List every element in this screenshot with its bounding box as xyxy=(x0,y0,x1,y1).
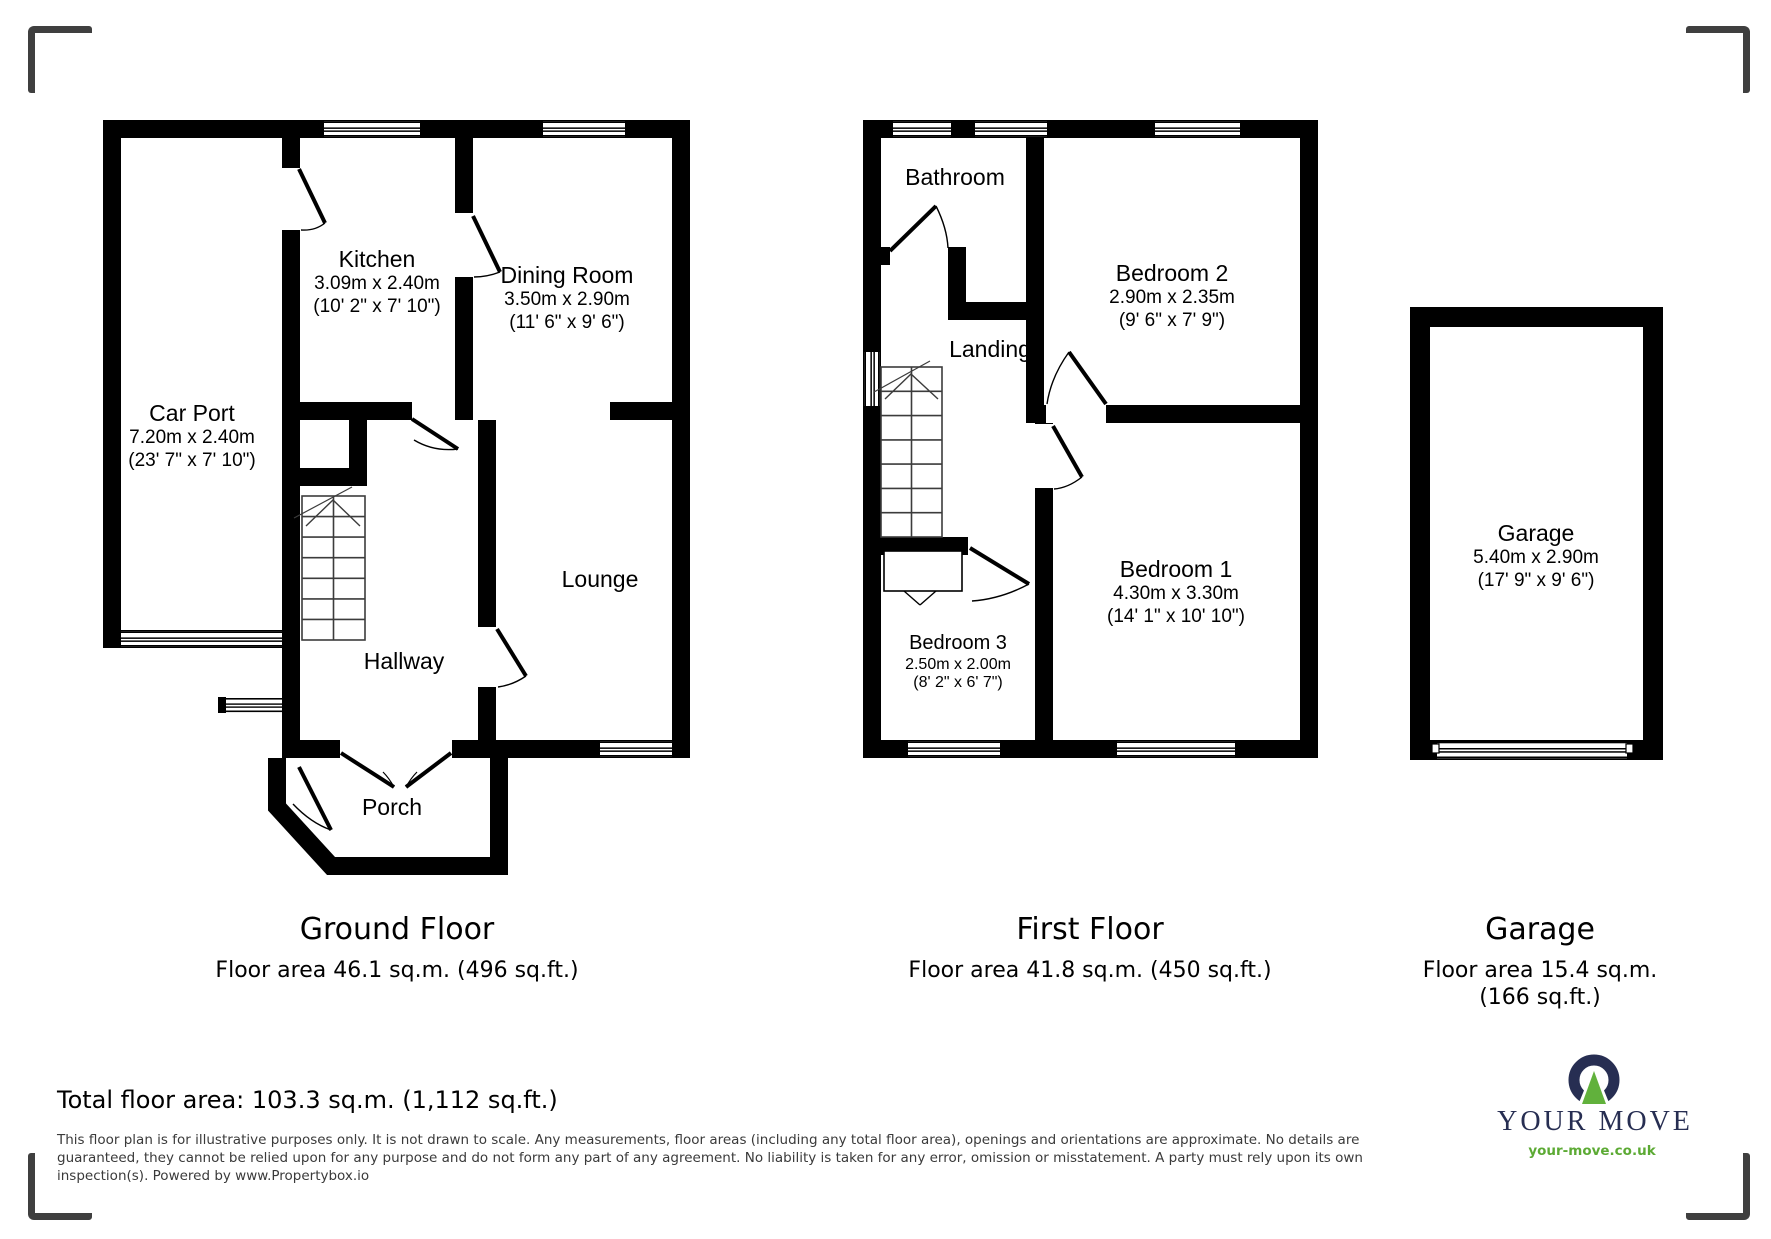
room-name: Bedroom 2 xyxy=(1109,260,1235,287)
garage-area-line1: Floor area 15.4 sq.m. xyxy=(1423,958,1658,983)
room-dims-metric: 3.50m x 2.90m xyxy=(501,289,634,311)
room-dims-imperial: (9' 6" x 7' 9") xyxy=(1109,310,1235,332)
window xyxy=(543,121,625,137)
room-label-landing: Landing xyxy=(949,336,1031,363)
corner-bracket-top-right xyxy=(1686,26,1750,93)
room-label-dining-room: Dining Room 3.50m x 2.90m (11' 6" x 9' 6… xyxy=(501,262,634,334)
room-label-car-port: Car Port 7.20m x 2.40m (23' 7" x 7' 10") xyxy=(128,400,255,472)
floorplan-drawing xyxy=(0,0,1771,1239)
room-name: Landing xyxy=(949,336,1031,363)
room-label-kitchen: Kitchen 3.09m x 2.40m (10' 2" x 7' 10") xyxy=(313,246,440,318)
your-move-wordmark: YOUR MOVE xyxy=(1497,1106,1693,1138)
stairs xyxy=(874,361,942,537)
room-label-porch: Porch xyxy=(362,794,422,821)
room-dims-metric: 4.30m x 3.30m xyxy=(1107,583,1245,605)
garage-area-line2: (166 sq.ft.) xyxy=(1479,985,1601,1010)
room-dims-metric: 5.40m x 2.90m xyxy=(1473,547,1599,569)
garage-door xyxy=(1432,742,1633,759)
room-dims-metric: 3.09m x 2.40m xyxy=(313,273,440,295)
room-name: Lounge xyxy=(562,566,639,593)
room-label-bedroom-3: Bedroom 3 2.50m x 2.00m (8' 2" x 6' 7") xyxy=(905,632,1011,693)
room-name: Hallway xyxy=(364,648,445,675)
cupboard xyxy=(884,551,962,605)
window xyxy=(908,741,1000,757)
floorplan-page: Car Port 7.20m x 2.40m (23' 7" x 7' 10")… xyxy=(0,0,1771,1239)
window xyxy=(1155,121,1240,137)
first-floor-caption: First Floor xyxy=(1016,912,1163,947)
window xyxy=(226,698,282,712)
room-label-bathroom: Bathroom xyxy=(905,164,1005,191)
room-dims-imperial: (23' 7" x 7' 10") xyxy=(128,450,255,472)
room-label-hallway: Hallway xyxy=(364,648,445,675)
ground-floor-area: Floor area 46.1 sq.m. (496 sq.ft.) xyxy=(215,958,578,983)
room-name: Porch xyxy=(362,794,422,821)
disclaimer-line: This floor plan is for illustrative purp… xyxy=(57,1132,1363,1150)
room-label-lounge: Lounge xyxy=(562,566,639,593)
room-name: Car Port xyxy=(128,400,255,427)
room-dims-imperial: (11' 6" x 9' 6") xyxy=(501,312,634,334)
stairs xyxy=(294,487,365,640)
room-name: Dining Room xyxy=(501,262,634,289)
total-floor-area: Total floor area: 103.3 sq.m. (1,112 sq.… xyxy=(57,1086,558,1114)
room-dims-metric: 2.50m x 2.00m xyxy=(905,656,1011,675)
ground-floor-caption: Ground Floor xyxy=(300,912,495,947)
first-floor-area: Floor area 41.8 sq.m. (450 sq.ft.) xyxy=(908,958,1271,983)
room-dims-imperial: (10' 2" x 7' 10") xyxy=(313,296,440,318)
corner-bracket-top-left xyxy=(28,26,92,93)
garage-caption: Garage xyxy=(1485,912,1595,947)
window xyxy=(893,121,951,137)
room-dims-metric: 7.20m x 2.40m xyxy=(128,427,255,449)
corner-bracket-bottom-right xyxy=(1686,1153,1750,1220)
room-name: Bedroom 3 xyxy=(905,632,1011,656)
window xyxy=(975,121,1047,137)
room-dims-imperial: (17' 9" x 9' 6") xyxy=(1473,570,1599,592)
corner-bracket-bottom-left xyxy=(28,1153,92,1220)
room-label-garage: Garage 5.40m x 2.90m (17' 9" x 9' 6") xyxy=(1473,520,1599,592)
your-move-logo-icon xyxy=(1564,1054,1624,1110)
window xyxy=(1117,741,1235,757)
your-move-url: your-move.co.uk xyxy=(1528,1143,1655,1159)
window xyxy=(121,631,282,647)
room-dims-imperial: (14' 1" x 10' 10") xyxy=(1107,606,1245,628)
room-label-bedroom-1: Bedroom 1 4.30m x 3.30m (14' 1" x 10' 10… xyxy=(1107,556,1245,628)
window xyxy=(864,352,880,406)
room-label-bedroom-2: Bedroom 2 2.90m x 2.35m (9' 6" x 7' 9") xyxy=(1109,260,1235,332)
room-dims-imperial: (8' 2" x 6' 7") xyxy=(905,674,1011,693)
room-name: Garage xyxy=(1473,520,1599,547)
disclaimer-line: guaranteed, they cannot be relied upon f… xyxy=(57,1150,1363,1168)
window xyxy=(600,741,672,757)
window xyxy=(324,121,420,137)
room-name: Bedroom 1 xyxy=(1107,556,1245,583)
room-dims-metric: 2.90m x 2.35m xyxy=(1109,287,1235,309)
disclaimer-line: inspection(s). Powered by www.Propertybo… xyxy=(57,1168,1363,1186)
room-name: Kitchen xyxy=(313,246,440,273)
disclaimer: This floor plan is for illustrative purp… xyxy=(57,1132,1363,1186)
room-name: Bathroom xyxy=(905,164,1005,191)
